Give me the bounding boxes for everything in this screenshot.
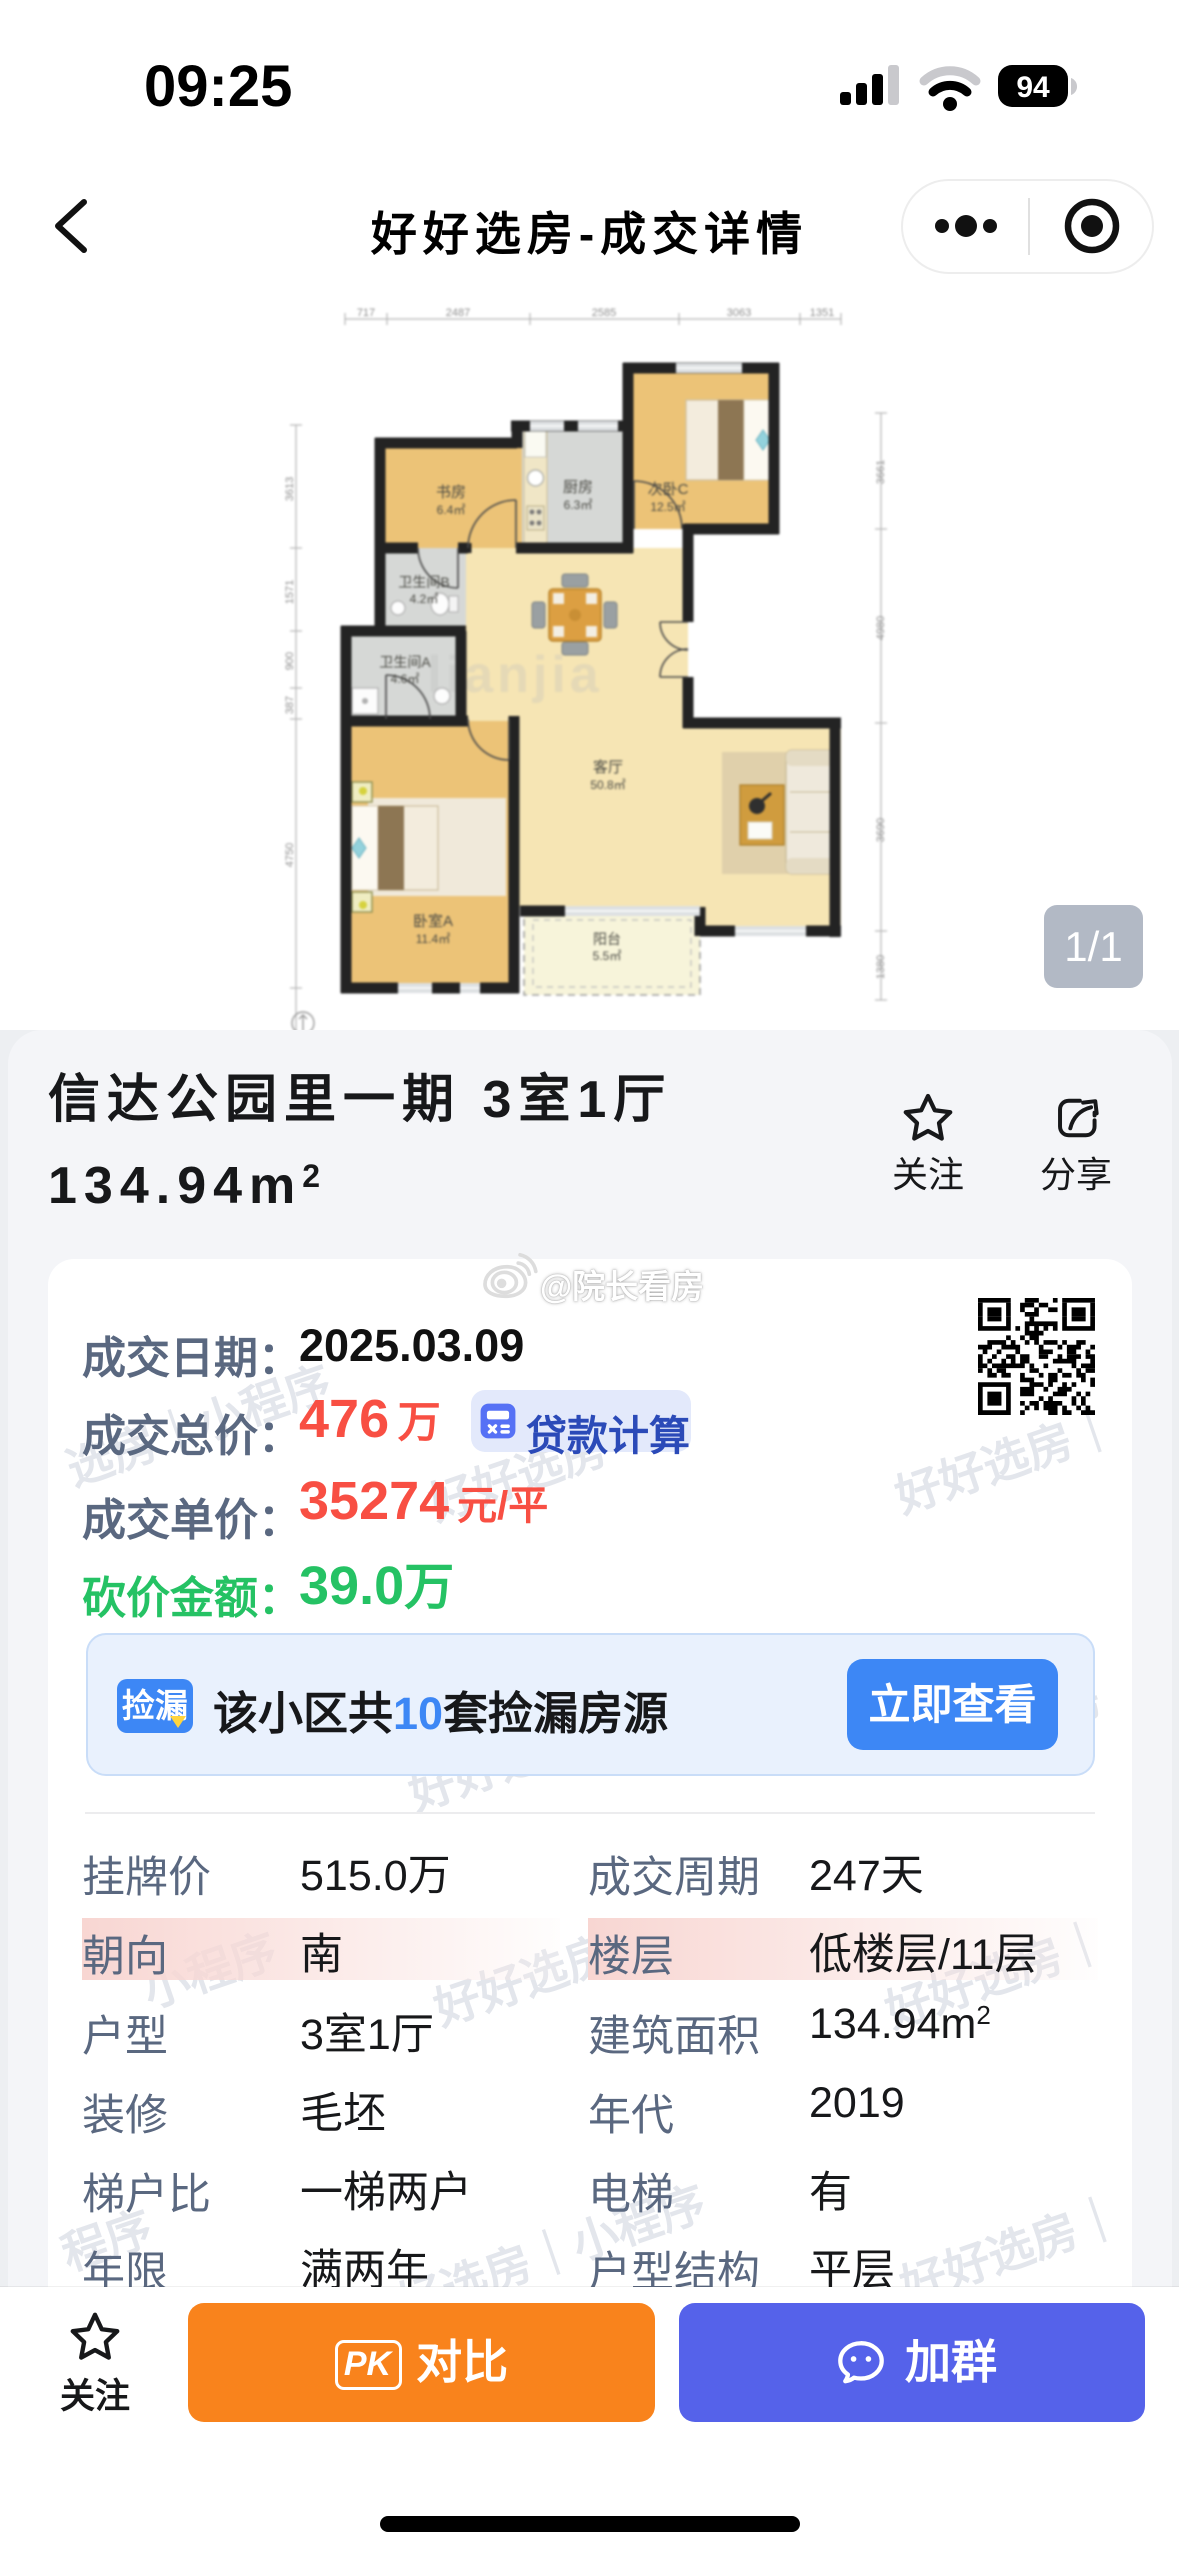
svg-text:717: 717 bbox=[357, 307, 375, 319]
svg-text:2487: 2487 bbox=[446, 307, 470, 319]
svg-text:900: 900 bbox=[284, 652, 296, 670]
svg-text:6.4㎡: 6.4㎡ bbox=[437, 503, 466, 517]
svg-text:书房: 书房 bbox=[436, 484, 466, 501]
svg-text:1571: 1571 bbox=[284, 580, 296, 604]
svg-text:阳台: 阳台 bbox=[593, 931, 621, 947]
svg-text:4.2㎡: 4.2㎡ bbox=[410, 592, 439, 606]
svg-text:5.5㎡: 5.5㎡ bbox=[593, 949, 622, 963]
svg-text:厨房: 厨房 bbox=[563, 479, 593, 496]
svg-text:3063: 3063 bbox=[727, 307, 751, 319]
svg-text:3690: 3690 bbox=[875, 818, 887, 842]
svg-text:6.3㎡: 6.3㎡ bbox=[564, 498, 593, 512]
svg-text:50.8㎡: 50.8㎡ bbox=[590, 778, 625, 792]
svg-text:2585: 2585 bbox=[592, 307, 616, 319]
svg-text:12.5㎡: 12.5㎡ bbox=[650, 500, 685, 514]
svg-text:卧室A: 卧室A bbox=[413, 913, 453, 930]
svg-text:4980: 4980 bbox=[875, 616, 887, 640]
svg-text:卫生间A: 卫生间A bbox=[379, 654, 431, 670]
svg-text:94: 94 bbox=[1016, 71, 1050, 104]
svg-text:3613: 3613 bbox=[284, 477, 296, 501]
svg-text:4.6㎡: 4.6㎡ bbox=[391, 672, 420, 686]
svg-text:11.4㎡: 11.4㎡ bbox=[416, 932, 450, 946]
svg-text:387: 387 bbox=[284, 696, 296, 714]
svg-text:次卧C: 次卧C bbox=[648, 481, 689, 498]
svg-text:1351: 1351 bbox=[810, 307, 834, 319]
svg-text:3661: 3661 bbox=[875, 460, 887, 484]
svg-text:4750: 4750 bbox=[284, 843, 296, 867]
svg-text:1380: 1380 bbox=[875, 955, 887, 979]
svg-text:客厅: 客厅 bbox=[593, 759, 623, 776]
svg-text:卫生间B: 卫生间B bbox=[398, 574, 449, 590]
